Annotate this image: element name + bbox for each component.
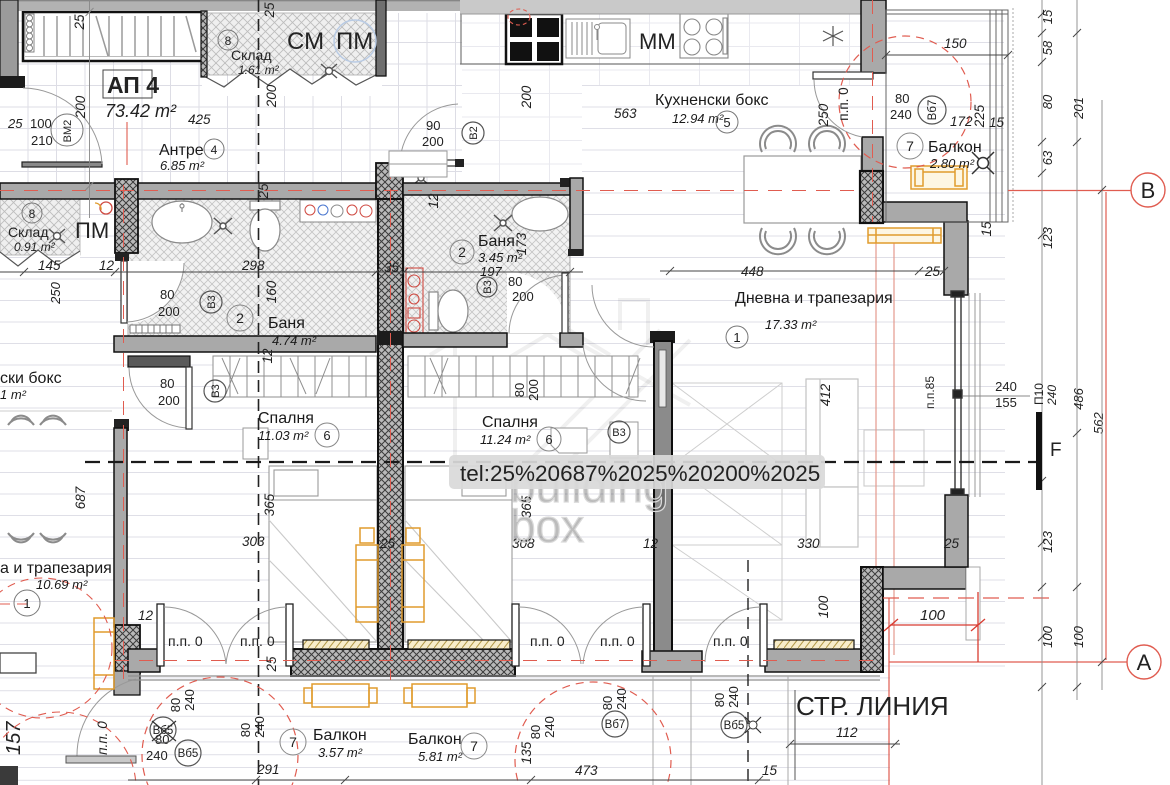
svg-text:15: 15 — [989, 115, 1005, 130]
svg-text:11.03 m²: 11.03 m² — [258, 428, 309, 443]
svg-text:6: 6 — [323, 428, 330, 443]
svg-text:160: 160 — [264, 280, 279, 303]
svg-text:123: 123 — [1040, 226, 1055, 248]
svg-text:200: 200 — [422, 134, 444, 149]
svg-text:150: 150 — [944, 36, 967, 51]
svg-text:412: 412 — [818, 383, 833, 406]
svg-text:10.69 m²: 10.69 m² — [36, 577, 88, 592]
svg-text:ВМ2: ВМ2 — [62, 120, 74, 143]
svg-text:200: 200 — [264, 84, 279, 108]
svg-text:17.33 m²: 17.33 m² — [765, 317, 817, 332]
svg-text:В3: В3 — [612, 427, 625, 439]
svg-text:200: 200 — [158, 304, 180, 319]
svg-text:п.п. 0: п.п. 0 — [95, 721, 110, 755]
svg-text:200: 200 — [158, 393, 180, 408]
svg-text:2: 2 — [236, 310, 244, 326]
svg-text:4: 4 — [211, 143, 218, 157]
svg-text:25: 25 — [924, 264, 941, 279]
svg-text:303: 303 — [242, 534, 265, 549]
svg-text:240: 240 — [182, 689, 197, 711]
svg-text:25: 25 — [943, 536, 960, 551]
svg-text:200: 200 — [73, 95, 88, 119]
svg-text:90: 90 — [426, 118, 440, 133]
svg-text:80: 80 — [712, 693, 727, 707]
svg-text:box: box — [510, 500, 584, 552]
svg-text:п.п. 0: п.п. 0 — [713, 633, 748, 649]
svg-text:В2: В2 — [468, 126, 480, 139]
svg-text:1.61 m²: 1.61 m² — [238, 63, 280, 77]
svg-text:100: 100 — [920, 607, 946, 624]
svg-text:п.п. 0: п.п. 0 — [530, 633, 565, 649]
svg-text:80: 80 — [238, 723, 253, 737]
svg-text:12: 12 — [138, 608, 154, 623]
svg-text:3.57 m²: 3.57 m² — [318, 745, 363, 760]
svg-text:п.п. 0: п.п. 0 — [836, 87, 851, 120]
svg-text:Вб5: Вб5 — [178, 748, 199, 760]
svg-text:В3: В3 — [210, 384, 222, 397]
svg-text:Балкон: Балкон — [408, 731, 462, 748]
svg-text:25: 25 — [262, 2, 277, 19]
svg-text:157: 157 — [3, 721, 25, 755]
svg-text:197: 197 — [480, 264, 502, 279]
svg-text:Вб7: Вб7 — [605, 719, 626, 731]
svg-text:11.24 m²: 11.24 m² — [480, 432, 531, 447]
svg-text:240: 240 — [726, 686, 741, 708]
svg-text:Кухненски бокс: Кухненски бокс — [655, 92, 769, 109]
svg-text:225: 225 — [972, 104, 987, 128]
svg-text:1: 1 — [23, 596, 30, 611]
svg-text:330: 330 — [797, 536, 820, 551]
svg-text:п.п. 0: п.п. 0 — [168, 633, 203, 649]
svg-text:В3: В3 — [206, 295, 218, 308]
svg-text:В: В — [1141, 178, 1156, 203]
svg-text:ММ: ММ — [639, 29, 676, 54]
svg-text:12: 12 — [99, 258, 115, 273]
svg-text:Антре: Антре — [159, 142, 204, 159]
svg-text:291: 291 — [256, 762, 280, 777]
svg-text:80: 80 — [512, 383, 527, 397]
svg-text:1: 1 — [733, 330, 740, 345]
svg-text:1 m²: 1 m² — [0, 387, 27, 402]
svg-text:80: 80 — [600, 696, 615, 710]
svg-text:240: 240 — [614, 688, 629, 710]
svg-text:п.п. 0: п.п. 0 — [240, 633, 275, 649]
svg-text:73.42 m²: 73.42 m² — [105, 101, 177, 121]
svg-text:80: 80 — [168, 698, 183, 712]
svg-text:tel:25%20687%2025%20200%2025: tel:25%20687%2025%20200%2025 — [460, 461, 820, 486]
svg-text:4.74 m²: 4.74 m² — [272, 333, 317, 348]
svg-text:п.п.85: п.п.85 — [923, 376, 937, 409]
svg-text:25: 25 — [72, 14, 87, 31]
svg-text:123: 123 — [1040, 530, 1055, 552]
svg-text:В3: В3 — [482, 280, 494, 293]
svg-text:12: 12 — [426, 193, 441, 209]
svg-text:25: 25 — [379, 536, 396, 551]
svg-text:25: 25 — [256, 183, 271, 200]
svg-text:15: 15 — [1040, 9, 1055, 24]
svg-text:486: 486 — [1071, 387, 1086, 409]
svg-text:2.80 m²: 2.80 m² — [929, 156, 975, 171]
svg-text:240: 240 — [890, 107, 912, 122]
svg-text:А: А — [1137, 650, 1152, 675]
svg-text:Вб5: Вб5 — [153, 725, 174, 737]
svg-text:562: 562 — [1091, 412, 1106, 434]
svg-text:172: 172 — [950, 114, 973, 129]
svg-text:Вб7: Вб7 — [927, 100, 939, 121]
svg-text:240: 240 — [995, 379, 1017, 394]
svg-text:8: 8 — [29, 207, 36, 221]
svg-text:425: 425 — [188, 112, 211, 127]
svg-text:100: 100 — [30, 116, 52, 131]
svg-text:8: 8 — [225, 34, 232, 48]
svg-text:63: 63 — [1040, 150, 1055, 165]
svg-text:6.85 m²: 6.85 m² — [160, 158, 205, 173]
svg-text:25: 25 — [7, 116, 23, 131]
svg-text:448: 448 — [741, 264, 764, 279]
svg-text:80: 80 — [508, 274, 522, 289]
svg-text:п.п. 0: п.п. 0 — [600, 633, 635, 649]
svg-text:298: 298 — [241, 258, 265, 273]
svg-text:2: 2 — [458, 244, 466, 260]
svg-text:7: 7 — [470, 738, 478, 754]
svg-text:200: 200 — [512, 289, 534, 304]
svg-text:365: 365 — [262, 493, 277, 516]
svg-text:145: 145 — [38, 258, 61, 273]
svg-text:240: 240 — [146, 748, 168, 763]
svg-text:П10: П10 — [1032, 383, 1046, 405]
svg-text:Дневна и трапезария: Дневна и трапезария — [735, 290, 893, 307]
svg-text:СТР. ЛИНИЯ: СТР. ЛИНИЯ — [796, 691, 949, 721]
svg-text:80: 80 — [528, 725, 543, 739]
svg-text:Балкон: Балкон — [313, 727, 367, 744]
svg-text:ПМ: ПМ — [75, 218, 109, 243]
svg-text:240: 240 — [252, 716, 267, 738]
svg-text:240: 240 — [1045, 385, 1059, 406]
svg-text:Баня: Баня — [268, 315, 305, 332]
svg-text:ПМ: ПМ — [336, 28, 373, 55]
svg-text:6: 6 — [545, 432, 552, 447]
svg-text:250: 250 — [48, 281, 63, 304]
svg-text:201: 201 — [1071, 97, 1086, 120]
svg-text:155: 155 — [995, 395, 1017, 410]
svg-text:Склад: Склад — [8, 224, 49, 240]
svg-text:173: 173 — [514, 232, 529, 255]
svg-text:АП 4: АП 4 — [107, 72, 159, 98]
svg-text:7: 7 — [906, 138, 914, 154]
svg-text:100: 100 — [1071, 625, 1086, 647]
svg-text:687: 687 — [73, 486, 88, 509]
svg-text:15: 15 — [979, 221, 994, 237]
svg-text:210: 210 — [31, 133, 53, 148]
svg-text:240: 240 — [542, 716, 557, 738]
svg-text:Спалня: Спалня — [482, 414, 538, 431]
svg-text:80: 80 — [160, 287, 174, 302]
svg-text:80: 80 — [895, 91, 909, 106]
svg-text:Баня: Баня — [478, 233, 515, 250]
svg-text:200: 200 — [519, 85, 534, 109]
svg-text:ски бокс: ски бокс — [0, 370, 62, 387]
svg-text:80: 80 — [160, 376, 174, 391]
svg-text:Спалня: Спалня — [258, 410, 314, 427]
svg-text:135: 135 — [519, 741, 534, 764]
svg-text:58: 58 — [1040, 40, 1055, 55]
svg-text:250: 250 — [816, 103, 831, 127]
svg-text:563: 563 — [614, 106, 637, 121]
svg-text:100: 100 — [1040, 625, 1055, 647]
svg-text:35: 35 — [384, 260, 400, 275]
svg-text:12: 12 — [260, 348, 275, 364]
svg-text:473: 473 — [575, 763, 598, 778]
svg-text:СМ: СМ — [287, 28, 324, 55]
svg-text:25: 25 — [264, 656, 279, 673]
svg-text:80: 80 — [1040, 94, 1055, 109]
svg-text:5: 5 — [723, 115, 730, 130]
svg-text:Склад: Склад — [231, 47, 272, 63]
svg-text:200: 200 — [526, 379, 541, 401]
svg-text:100: 100 — [816, 595, 831, 618]
svg-text:F: F — [1050, 440, 1062, 461]
svg-text:Вб5: Вб5 — [724, 720, 745, 732]
svg-text:5.81 m²: 5.81 m² — [418, 749, 463, 764]
svg-text:7: 7 — [289, 734, 297, 750]
svg-text:а и трапезария: а и трапезария — [0, 560, 112, 577]
svg-text:12: 12 — [643, 536, 659, 551]
svg-text:112: 112 — [836, 725, 858, 740]
svg-text:15: 15 — [762, 763, 778, 778]
